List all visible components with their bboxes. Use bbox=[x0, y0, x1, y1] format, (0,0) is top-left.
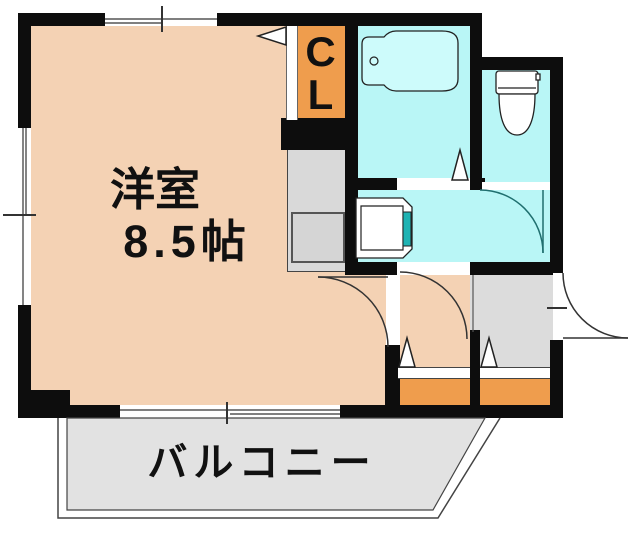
main-room-size: 8.5帖 bbox=[82, 216, 292, 268]
bathtub-drain bbox=[370, 57, 378, 65]
entrance-step-triangle bbox=[481, 338, 497, 367]
main-room-name: 洋室 bbox=[55, 164, 255, 216]
washroom-door-arc bbox=[400, 272, 467, 339]
entrance-door-arc bbox=[563, 273, 628, 338]
washing-machine bbox=[356, 198, 412, 258]
closet-label: C L bbox=[296, 30, 345, 116]
closet-label-line2: L bbox=[296, 73, 345, 116]
closet-label-line1: C bbox=[296, 30, 345, 73]
bathroom-door-triangle bbox=[452, 150, 468, 180]
main-room-label: 洋室 bbox=[55, 164, 255, 216]
floor-plan: 洋室 8.5帖 C L バルコニー bbox=[0, 0, 640, 536]
closet-door-triangle bbox=[258, 27, 286, 45]
balcony-label: バルコニー bbox=[112, 440, 412, 486]
washing-machine-faucet bbox=[403, 212, 411, 246]
toilet-door-arc bbox=[480, 190, 543, 253]
toilet-bowl bbox=[496, 71, 540, 135]
hall-step-triangle bbox=[399, 338, 415, 367]
room-door-arc bbox=[318, 277, 388, 347]
